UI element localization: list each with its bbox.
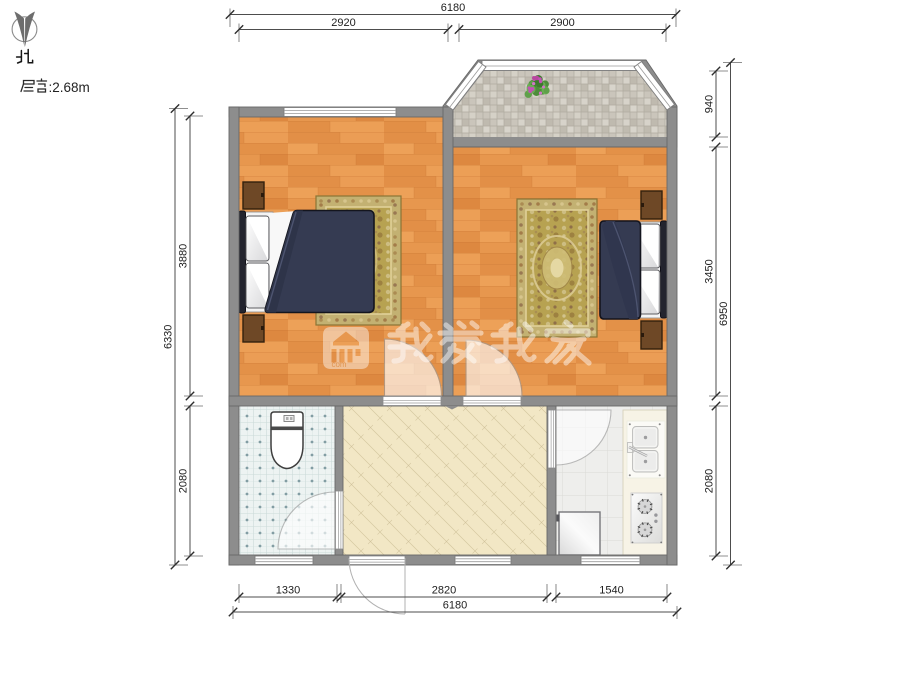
svg-text:940: 940 [704, 95, 716, 113]
svg-text:2080: 2080 [178, 469, 190, 493]
svg-text:6950: 6950 [718, 302, 730, 326]
svg-text:3880: 3880 [178, 244, 190, 268]
svg-text:1540: 1540 [599, 585, 623, 597]
svg-text:2820: 2820 [432, 585, 456, 597]
svg-text:1330: 1330 [276, 585, 300, 597]
svg-text:2920: 2920 [331, 17, 355, 29]
svg-text::2.68m: :2.68m [49, 80, 90, 95]
svg-text:2900: 2900 [550, 17, 574, 29]
svg-text:6180: 6180 [441, 2, 465, 14]
svg-text:3450: 3450 [704, 259, 716, 283]
svg-text:6330: 6330 [163, 325, 175, 349]
svg-text:com: com [331, 360, 346, 369]
svg-text:6180: 6180 [443, 600, 467, 612]
svg-text:2080: 2080 [704, 469, 716, 493]
